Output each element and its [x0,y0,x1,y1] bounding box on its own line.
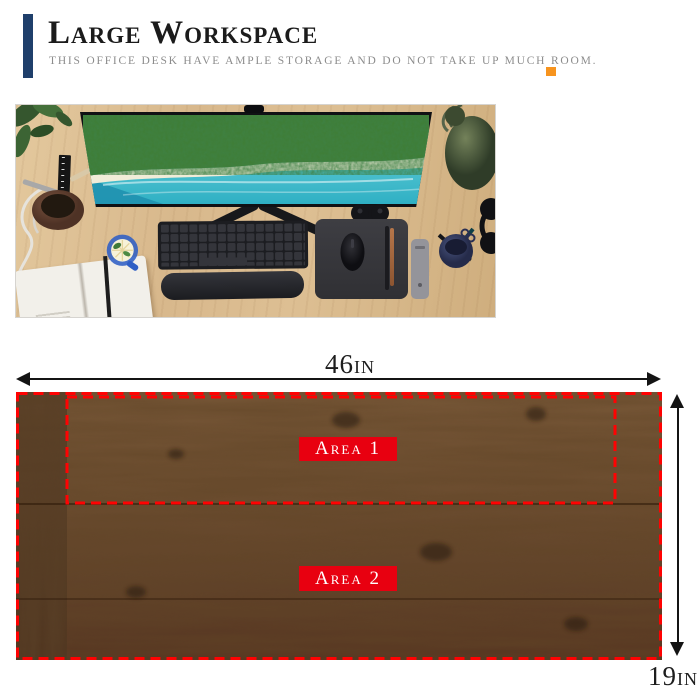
webcam [244,105,264,113]
area-1-label: Area 1 [299,437,397,461]
remote-control [411,239,429,299]
teacup-with-lemon [105,231,145,273]
stylus-pen [390,228,394,286]
notebook-spine [77,263,91,318]
depth-value: 19 [648,661,677,691]
depth-arrow [670,394,685,656]
arrow-line [677,405,679,645]
arrow-line [27,378,650,380]
tabletop: Area 1 Area 2 [16,392,662,660]
accent-bar [23,14,33,78]
wood-texture [16,392,662,660]
monitor [80,112,432,207]
keyboard [158,220,308,269]
arrow-bottom-head [670,642,684,656]
depth-unit: in [677,669,698,689]
keyboard-keys [161,223,305,266]
notebook-stitching [36,311,71,318]
pen-holder-pot [31,189,85,231]
width-arrow [16,372,661,386]
page-subtitle: THIS OFFICE DESK HAVE AMPLE STORAGE AND … [49,55,597,67]
wrist-rest [161,271,304,300]
depth-dimension-label: 19in [634,661,698,692]
pen-cup [435,226,477,270]
pen-slot [385,226,389,290]
arrow-right-head [647,372,661,386]
remote-notch [415,246,425,249]
remote-hole [418,283,422,287]
plant-vase [440,105,496,191]
desk-photo [15,104,496,318]
page-title: Large Workspace [48,14,318,52]
area-2-label: Area 2 [299,566,397,591]
headphones [475,195,496,259]
monitor-screen-beach [83,115,429,204]
mouse [339,231,366,273]
accent-square [546,67,556,76]
product-infographic: Large Workspace THIS OFFICE DESK HAVE AM… [0,0,700,700]
